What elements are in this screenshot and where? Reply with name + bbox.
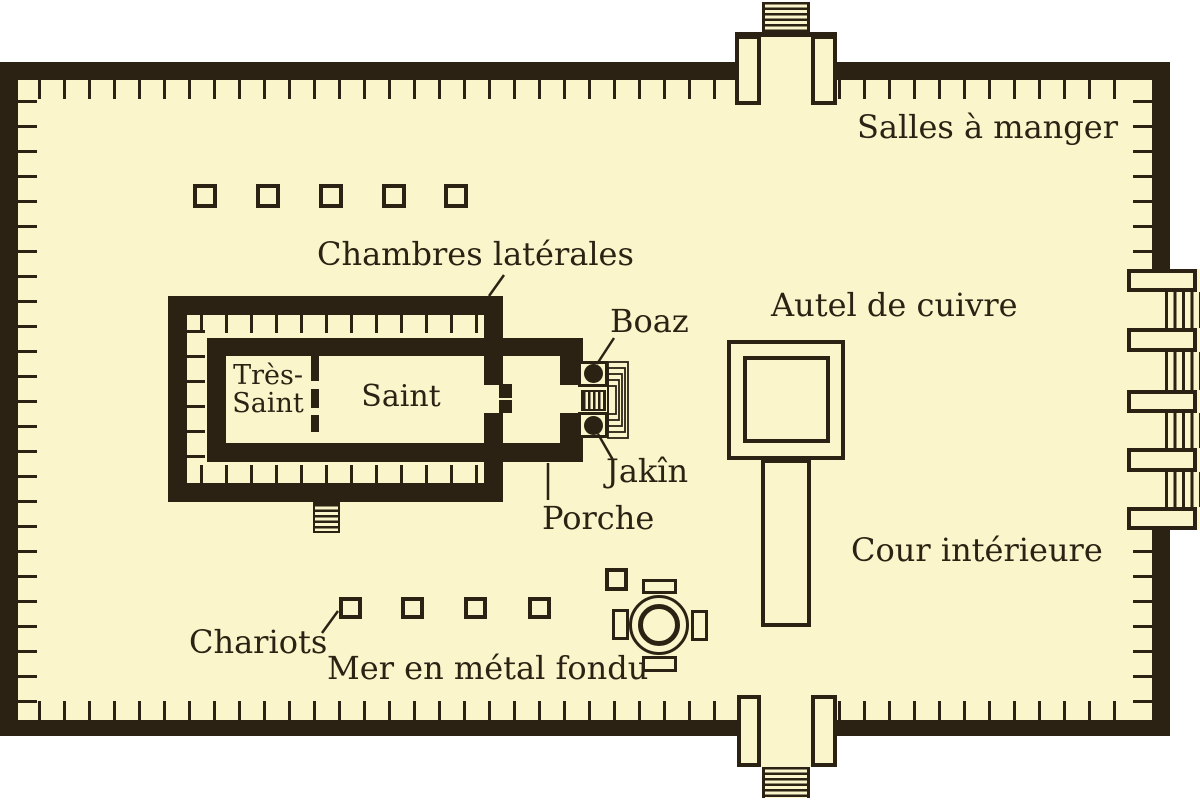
courtyard-ticks-left: [18, 100, 37, 706]
pillar-boaz: [584, 364, 603, 383]
label-salles-a-manger: Salles à manger: [857, 111, 1118, 145]
south-gate-pylon-east: [811, 695, 837, 767]
enclosure-ticks-left: [187, 330, 205, 470]
label-mer-en-metal-fondu: Mer en métal fondu: [327, 652, 648, 686]
partition-dash-3: [311, 415, 319, 432]
south-gate-staircase: [762, 767, 810, 798]
chariot-square-3: [464, 597, 487, 619]
north-gate-passage: [760, 37, 812, 105]
chariot-square-1: [339, 597, 362, 619]
holy-door-post-south: [499, 400, 512, 413]
partition-dash-1: [311, 356, 319, 381]
label-autel-de-cuivre: Autel de cuivre: [771, 289, 1018, 323]
storage-square-3: [319, 184, 343, 208]
label-tres-saint-line1: Très-: [233, 360, 303, 391]
label-cour-interieure: Cour intérieure: [851, 534, 1103, 568]
south-gate-passage: [760, 695, 812, 767]
enclosure-south-staircase: [313, 502, 340, 533]
east-gate-passage-2: [1165, 352, 1200, 390]
entrance-steps: [581, 390, 606, 411]
north-gate-pylon-west: [735, 35, 761, 105]
storage-square-1: [193, 184, 217, 208]
label-porche: Porche: [542, 502, 654, 536]
chariot-square-4: [528, 597, 551, 619]
holy-door-post-north: [499, 384, 512, 398]
storage-square-4: [382, 184, 406, 208]
pillar-jakin: [584, 416, 603, 435]
courtyard-ticks-top: [38, 80, 1138, 99]
storage-square-5: [444, 184, 468, 208]
east-gate-passage-1: [1165, 292, 1200, 328]
storage-square-2: [256, 184, 280, 208]
east-gate-passage-3: [1165, 413, 1200, 448]
molten-sea-basin: [638, 604, 680, 646]
label-tres-saint-line2: Saint: [232, 388, 303, 419]
enclosure-ticks-top: [200, 315, 482, 333]
label-jakin: Jakîn: [606, 455, 688, 489]
label-chambres-laterales: Chambres latérales: [317, 238, 634, 272]
east-gate-bar-1: [1127, 269, 1197, 292]
bronze-altar-hearth: [743, 356, 830, 443]
altar-ramp: [761, 459, 811, 627]
north-gate-staircase: [762, 2, 810, 34]
east-gate-bar-4: [1127, 448, 1197, 472]
courtyard-ticks-bottom: [38, 701, 1138, 720]
label-boaz: Boaz: [610, 305, 689, 339]
chariot-square-2: [401, 597, 424, 619]
sea-stand-east: [691, 610, 708, 641]
east-gate-bar-5: [1127, 507, 1197, 530]
label-saint: Saint: [318, 381, 484, 413]
label-tres-saint: Très- Saint: [224, 362, 312, 418]
sea-stand-north: [642, 579, 677, 594]
sea-side-square: [605, 568, 628, 591]
temple-plan-diagram: Salles à manger Chambres latérales Boaz …: [0, 0, 1200, 800]
east-gate-bar-2: [1127, 328, 1197, 352]
label-chariots: Chariots: [189, 626, 327, 660]
sea-stand-west: [612, 609, 629, 640]
north-gate-pylon-east: [811, 35, 837, 105]
porch-east-opening: [560, 385, 583, 413]
east-gate-passage-4: [1165, 472, 1200, 507]
enclosure-ticks-bottom: [200, 465, 482, 483]
east-gate-bar-3: [1127, 390, 1197, 413]
south-gate-pylon-west: [737, 695, 761, 767]
